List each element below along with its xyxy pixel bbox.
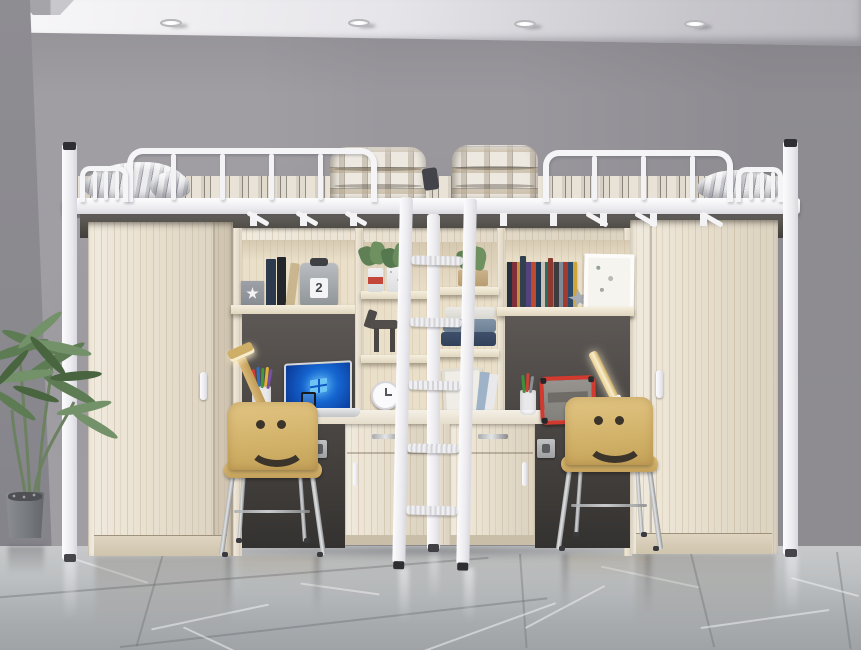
chair-foot (573, 532, 579, 537)
frame-art-dot (608, 276, 613, 281)
right-bay-shelf (497, 307, 634, 316)
post-reflection (64, 560, 76, 620)
book (520, 256, 526, 307)
ladder-rung[interactable] (412, 255, 463, 265)
post-reflection (786, 554, 798, 614)
star-picture-frame (241, 281, 264, 306)
wardrobe-reflection (635, 554, 775, 626)
ceiling-spotlight (514, 20, 536, 28)
pencil-cup (520, 390, 536, 415)
ladder-foot (393, 561, 404, 569)
ceiling-spotlight (348, 19, 370, 27)
figurine-leg (374, 328, 379, 352)
bed-slat-tab (550, 213, 557, 226)
ladder-rung[interactable] (408, 443, 459, 453)
chair-foot (653, 546, 659, 551)
center-shelf-stile (497, 228, 505, 412)
left-bed-guardrail (127, 148, 377, 202)
chair-leg (556, 470, 572, 550)
chair-leg (574, 466, 583, 536)
bed-slat-tab (500, 213, 507, 226)
bed-post-right (783, 141, 798, 555)
right-bed-guardrail (543, 150, 733, 202)
smiley-smile (586, 424, 644, 463)
cabinet-handle[interactable] (522, 462, 527, 486)
guardrail-bar (749, 172, 753, 200)
potted-plant (0, 290, 175, 550)
pot-reflection (8, 546, 44, 574)
chair-left[interactable] (218, 398, 326, 560)
blanket-crease (455, 184, 534, 188)
guardrail-bar (220, 154, 225, 200)
smiley-smile (248, 428, 306, 467)
chair-leg (298, 472, 307, 542)
folded-blanket (452, 145, 538, 202)
guardrail-bar (269, 154, 274, 200)
left-end-guardrail (80, 166, 128, 202)
case-corner (588, 376, 594, 382)
ladder-reflection (399, 568, 409, 623)
wardrobe-handle[interactable] (200, 372, 207, 400)
cabinet-handle[interactable] (353, 462, 358, 486)
clock-hand (385, 394, 392, 396)
guardrail-bar (93, 171, 97, 200)
post-top-cap (784, 139, 797, 147)
chair-foot (222, 552, 228, 557)
post-foot (785, 549, 797, 557)
chair-foot (559, 546, 565, 551)
potted-plant-can (368, 268, 383, 292)
guardrail-bar (760, 172, 764, 200)
guardrail-bar (771, 172, 775, 200)
chair-foot (236, 538, 242, 543)
case-corner (542, 418, 548, 424)
plant-foliage (0, 290, 175, 505)
right-end-guardrail (736, 167, 783, 202)
chair-foot (304, 538, 310, 543)
chair-leg (219, 476, 235, 556)
book (548, 258, 553, 307)
frame-art-dot (596, 266, 600, 270)
chair-foot (641, 532, 647, 537)
ceiling-spotlight (684, 20, 706, 28)
chair-foot (317, 552, 323, 557)
case-corner (540, 378, 546, 384)
left-bay-shelf (231, 305, 368, 314)
chair-stretcher (571, 504, 647, 507)
chair-leg (635, 466, 644, 536)
book-row (507, 262, 577, 307)
chair-right[interactable] (553, 394, 661, 556)
chair-backrest (228, 402, 318, 470)
ladder-rung[interactable] (410, 317, 461, 327)
can-red-band (368, 277, 383, 284)
ladder-rung[interactable] (406, 505, 457, 515)
blanket-crease (455, 166, 534, 170)
post-top-cap (63, 142, 76, 150)
guardrail-bar (641, 156, 646, 200)
ladder-rung[interactable] (409, 380, 460, 390)
book (277, 257, 286, 306)
guardrail-bar (171, 154, 176, 200)
guardrail-bar (318, 154, 323, 200)
ceiling-spotlight (160, 19, 182, 27)
ladder-reflection (464, 568, 474, 623)
canister-label: 2 (310, 278, 328, 298)
guardrail-bar (104, 171, 108, 200)
star-icon (246, 287, 259, 300)
chair-leg (647, 470, 663, 550)
scene: 2 (0, 0, 861, 650)
chair-leg (310, 476, 326, 556)
guardrail-bar (592, 156, 597, 200)
wardrobe-reflection (95, 556, 230, 626)
chair-backrest (565, 397, 653, 465)
frame-art-dot (600, 288, 604, 292)
figurine-leg (390, 328, 395, 352)
guardrail-bar (690, 156, 695, 200)
ladder-clamp (422, 167, 440, 191)
ladder-foot (457, 562, 468, 570)
smiley-eye (594, 416, 603, 425)
guardrail-bar (115, 171, 119, 200)
ladder[interactable] (392, 197, 482, 575)
chair-leg (237, 472, 246, 542)
tile-grout-line (836, 552, 852, 649)
canister-handle (310, 258, 328, 266)
drawer-handle[interactable] (478, 434, 508, 439)
chair-stretcher (234, 510, 310, 513)
plant-pot-soil (8, 492, 42, 501)
book (266, 259, 276, 306)
post-foot (64, 554, 76, 562)
marble-vein (791, 577, 859, 597)
decor-canister: 2 (300, 263, 338, 307)
smiley-eye (256, 420, 265, 429)
